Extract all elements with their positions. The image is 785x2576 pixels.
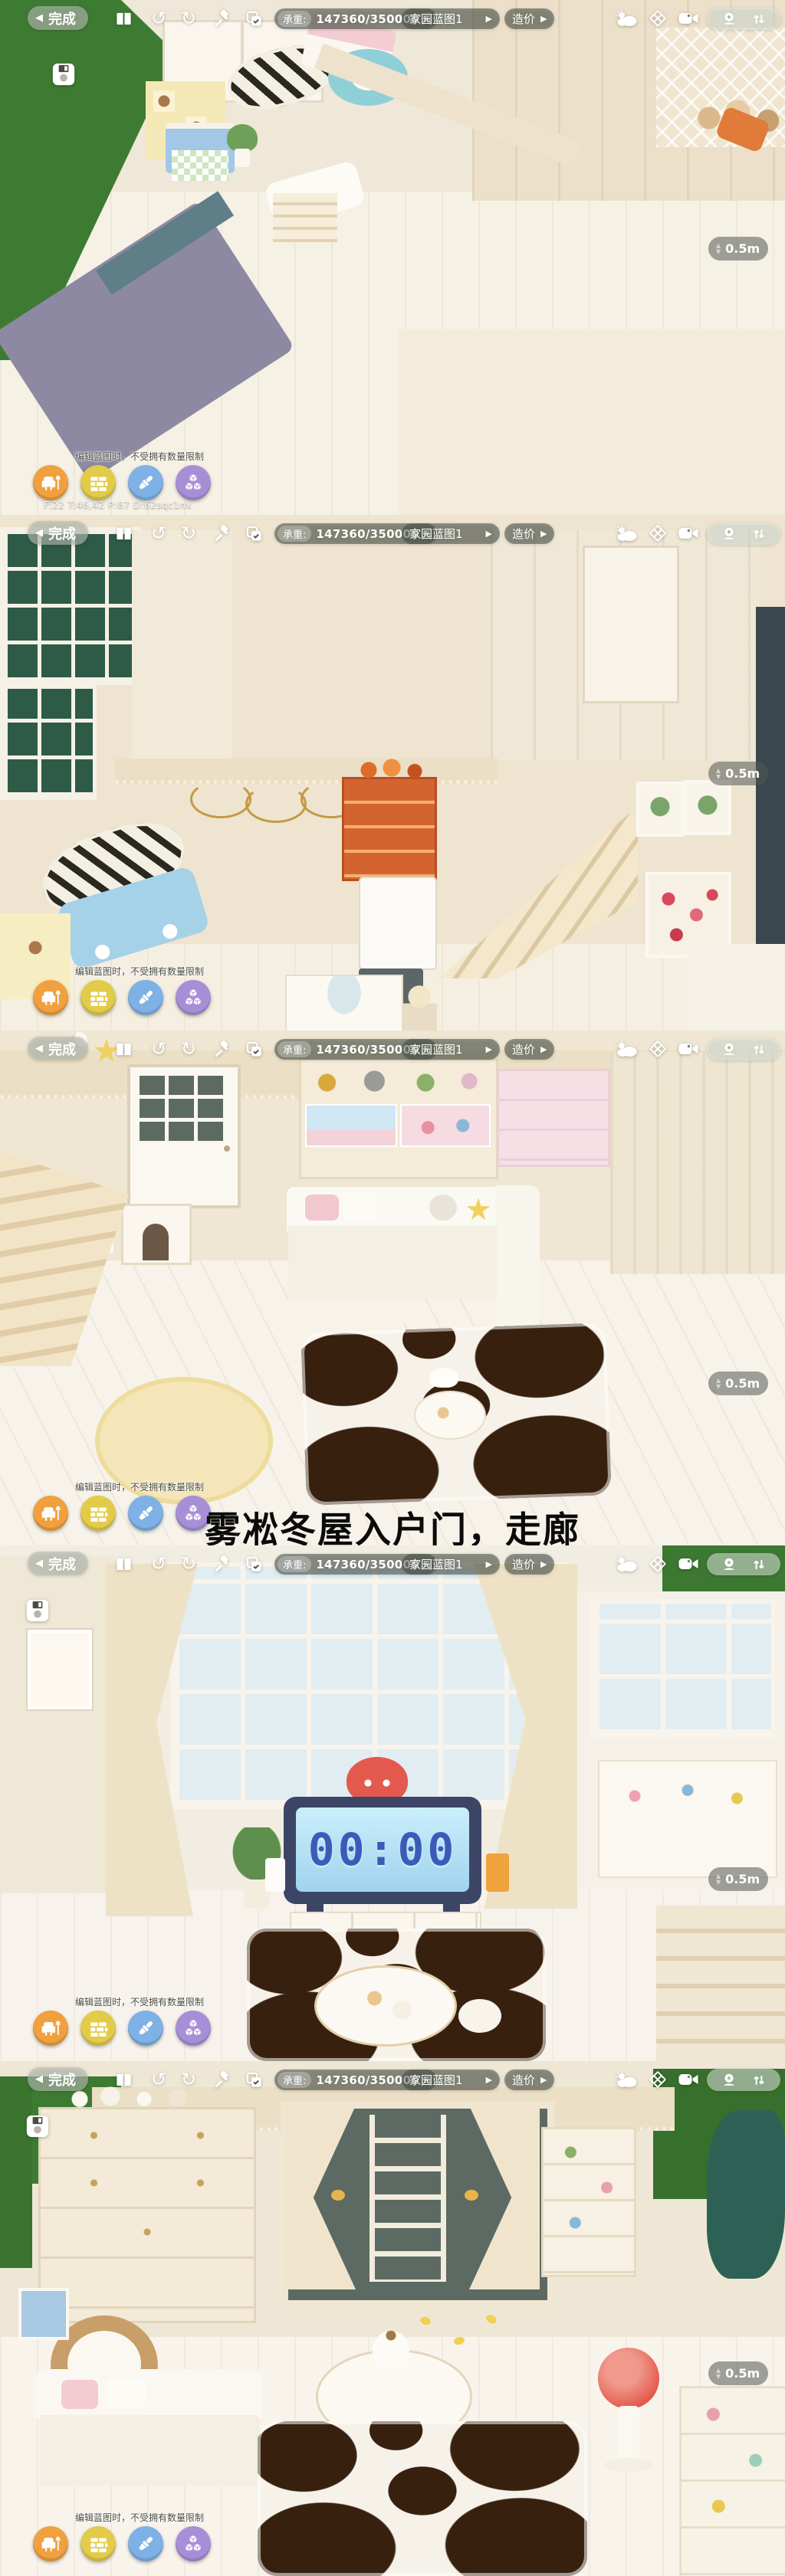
video-camera-icon[interactable] — [676, 8, 701, 29]
cost-button[interactable]: 造价 ▶ — [504, 1554, 554, 1575]
weather-icon[interactable] — [613, 2069, 641, 2090]
back-chevron-icon: ◀ — [35, 1043, 43, 1054]
floor-grid-icon[interactable] — [647, 1553, 668, 1575]
save-icon[interactable] — [51, 61, 77, 87]
redo-icon[interactable]: ↻ — [178, 8, 199, 29]
grid-size-steppers: ▲▼ — [716, 1873, 721, 1886]
cost-button[interactable]: 造价 ▶ — [504, 2070, 554, 2090]
cost-button[interactable]: 造价 ▶ — [504, 523, 554, 544]
weather-icon[interactable] — [613, 8, 641, 29]
grid-size-value: 0.5m — [725, 2366, 760, 2381]
floor-grid-icon[interactable] — [647, 2069, 668, 2090]
observer-camera-icon[interactable] — [721, 11, 737, 28]
top-bar: ◀ 完成 ↺ ↻ 承重: 147360/350000 ▶ 家园蓝图1 ▶ 造价 … — [0, 1031, 785, 1067]
grid-size-value: 0.5m — [725, 766, 760, 781]
blocks-mode-button[interactable] — [176, 2011, 211, 2046]
observer-camera-icon[interactable] — [721, 1041, 737, 1058]
grid-size-down-icon[interactable]: ▼ — [716, 2374, 721, 2380]
caption-text: 雾凇冬屋入户门，走廊 — [0, 1500, 785, 1545]
save-icon[interactable] — [25, 2113, 51, 2139]
cubes-icon — [182, 987, 204, 1008]
undo-icon[interactable]: ↺ — [148, 523, 169, 544]
finish-button[interactable]: ◀ 完成 — [28, 1552, 88, 1575]
weight-label: 承重: — [278, 1041, 311, 1057]
grid-size-stepper[interactable]: ▲▼ 0.5m — [708, 2361, 768, 2385]
video-camera-icon[interactable] — [676, 2069, 701, 2090]
blocks-mode-button[interactable] — [176, 980, 211, 1015]
grid-size-stepper[interactable]: ▲▼ 0.5m — [708, 237, 768, 261]
finish-label: 完成 — [48, 523, 76, 543]
blueprint-label: 家园蓝图1 — [409, 2072, 463, 2088]
grid-size-value: 0.5m — [725, 1376, 760, 1391]
sort-arrows-icon[interactable] — [751, 2073, 767, 2088]
weather-icon[interactable] — [613, 1553, 641, 1575]
wall-mode-button[interactable] — [80, 465, 116, 500]
cost-label: 造价 — [512, 526, 535, 542]
weight-label: 承重: — [278, 1556, 311, 1572]
camera-view-pill[interactable] — [707, 2069, 780, 2091]
redo-icon[interactable]: ↻ — [178, 1038, 199, 1060]
cost-arrow-icon[interactable]: ▶ — [540, 2075, 547, 2085]
bricks-icon — [88, 988, 109, 1008]
grid-size-down-icon[interactable]: ▼ — [716, 1384, 721, 1390]
blueprint-label: 家园蓝图1 — [409, 11, 463, 27]
sort-arrows-icon[interactable] — [751, 1042, 767, 1057]
floor-grid-icon[interactable] — [647, 523, 668, 544]
paint-mode-button[interactable] — [128, 465, 163, 500]
grid-size-value: 0.5m — [725, 1872, 760, 1886]
hammer-icon[interactable] — [212, 1553, 233, 1575]
top-bar: ◀ 完成 ↺ ↻ 承重: 147360/350000 ▶ 家园蓝图1 ▶ 造价 … — [0, 0, 785, 37]
paint-mode-button[interactable] — [128, 2011, 163, 2046]
grid-size-steppers: ▲▼ — [716, 2368, 721, 2380]
top-bar: ◀ 完成 ↺ ↻ 承重: 147360/350000 ▶ 家园蓝图1 ▶ 造价 … — [0, 515, 785, 552]
copy-check-icon[interactable] — [243, 1038, 264, 1060]
redo-icon[interactable]: ↻ — [178, 2069, 199, 2090]
paint-mode-button[interactable] — [128, 980, 163, 1015]
blueprint-book-icon[interactable] — [113, 1038, 134, 1060]
undo-icon[interactable]: ↺ — [148, 1553, 169, 1575]
cost-button[interactable]: 造价 ▶ — [504, 1039, 554, 1060]
blueprint-book-icon[interactable] — [113, 8, 134, 29]
blueprint-label: 家园蓝图1 — [409, 1041, 463, 1057]
floor-grid-icon[interactable] — [647, 8, 668, 29]
back-chevron-icon: ◀ — [35, 2073, 43, 2085]
weight-label: 承重: — [278, 11, 311, 27]
finish-label: 完成 — [48, 8, 76, 28]
weather-icon[interactable] — [613, 523, 641, 544]
camera-view-pill[interactable] — [707, 1038, 780, 1060]
hammer-icon[interactable] — [212, 523, 233, 544]
screenshot-panel-3: 雾凇冬屋入户门，走廊 ◀ 完成 ↺ ↻ 承重: 147360/350000 ▶ … — [0, 1031, 785, 1545]
back-chevron-icon: ◀ — [35, 1558, 43, 1569]
armchair-lamp-icon — [40, 2533, 61, 2555]
grid-size-down-icon[interactable]: ▼ — [716, 249, 721, 255]
camera-view-pill[interactable] — [707, 523, 780, 545]
redo-icon[interactable]: ↻ — [178, 523, 199, 544]
bricks-icon — [88, 2018, 109, 2039]
cost-label: 造价 — [512, 2072, 535, 2088]
camera-view-pill[interactable] — [707, 1553, 780, 1575]
copy-check-icon[interactable] — [243, 1553, 264, 1575]
back-chevron-icon: ◀ — [35, 527, 43, 539]
blueprint-hint-text: 编辑蓝图时，不受拥有数量限制 — [75, 2511, 204, 2524]
furniture-mode-button[interactable] — [33, 465, 68, 500]
redo-icon[interactable]: ↻ — [178, 1553, 199, 1575]
cubes-icon — [182, 472, 204, 493]
armchair-lamp-icon — [40, 2017, 61, 2039]
blueprint-book-icon[interactable] — [113, 2069, 134, 2090]
furniture-mode-button[interactable] — [33, 2526, 68, 2561]
blueprint-arrow-icon[interactable]: ▶ — [486, 1044, 492, 1054]
undo-icon[interactable]: ↺ — [148, 1038, 169, 1060]
screenshot-panel-4: 00:00 ◀ 完成 ↺ ↻ — [0, 1545, 785, 2061]
blueprint-hint-text: 编辑蓝图时，不受拥有数量限制 — [75, 1480, 204, 1493]
weather-icon[interactable] — [613, 1038, 641, 1060]
screenshot-panel-1: F:22 T:46,42 P:87 D:62sqc1nx ◀ 完成 ↺ ↻ 承重… — [0, 0, 785, 515]
cost-label: 造价 — [512, 11, 535, 27]
armchair-lamp-icon — [40, 472, 61, 493]
grid-size-stepper[interactable]: ▲▼ 0.5m — [708, 1867, 768, 1891]
paint-brush-icon — [135, 2533, 156, 2555]
armchair-lamp-icon — [40, 987, 61, 1008]
blueprint-selector[interactable]: 家园蓝图1 ▶ — [402, 523, 500, 544]
hammer-icon[interactable] — [212, 2069, 233, 2090]
blueprint-book-icon[interactable] — [113, 523, 134, 544]
paint-mode-button[interactable] — [128, 2526, 163, 2561]
undo-icon[interactable]: ↺ — [148, 2069, 169, 2090]
grid-size-stepper[interactable]: ▲▼ 0.5m — [708, 1372, 768, 1395]
video-camera-icon[interactable] — [676, 1553, 701, 1575]
grid-size-stepper[interactable]: ▲▼ 0.5m — [708, 762, 768, 785]
blueprint-label: 家园蓝图1 — [409, 526, 463, 542]
copy-check-icon[interactable] — [243, 8, 264, 29]
camera-view-pill[interactable] — [707, 8, 780, 30]
copy-check-icon[interactable] — [243, 2069, 264, 2090]
finish-label: 完成 — [48, 1554, 76, 1574]
cost-arrow-icon[interactable]: ▶ — [540, 529, 547, 539]
finish-label: 完成 — [48, 1039, 76, 1059]
blueprint-hint-text: 编辑蓝图时，不受拥有数量限制 — [75, 1995, 204, 2008]
finish-button[interactable]: ◀ 完成 — [28, 6, 88, 30]
finish-button[interactable]: ◀ 完成 — [28, 1037, 88, 1060]
cost-arrow-icon[interactable]: ▶ — [540, 1559, 547, 1569]
video-camera-icon[interactable] — [676, 1038, 701, 1060]
screenshot-strip: F:22 T:46,42 P:87 D:62sqc1nx ◀ 完成 ↺ ↻ 承重… — [0, 0, 785, 2576]
observer-camera-icon[interactable] — [721, 1556, 737, 1573]
sort-arrows-icon[interactable] — [751, 1557, 767, 1572]
cost-arrow-icon[interactable]: ▶ — [540, 1044, 547, 1054]
grid-size-down-icon[interactable]: ▼ — [716, 774, 721, 780]
top-bar: ◀ 完成 ↺ ↻ 承重: 147360/350000 ▶ 家园蓝图1 ▶ 造价 … — [0, 2061, 785, 2098]
finish-label: 完成 — [48, 2070, 76, 2089]
weight-label: 承重: — [278, 2072, 311, 2088]
paint-brush-icon — [135, 2017, 156, 2039]
cost-label: 造价 — [512, 1556, 535, 1572]
blueprint-arrow-icon[interactable]: ▶ — [486, 14, 492, 24]
copy-check-icon[interactable] — [243, 523, 264, 544]
bricks-icon — [88, 473, 109, 493]
paint-brush-icon — [135, 987, 156, 1008]
debug-overlay-text: F:22 T:46,42 P:87 D:62sqc1nx — [44, 500, 192, 510]
blocks-mode-button[interactable] — [176, 465, 211, 500]
observer-camera-icon[interactable] — [721, 2072, 737, 2089]
hammer-icon[interactable] — [212, 1038, 233, 1060]
cost-button[interactable]: 造价 ▶ — [504, 8, 554, 29]
floor-grid-icon[interactable] — [647, 1038, 668, 1060]
blueprint-hint-text: 编辑蓝图时，不受拥有数量限制 — [75, 965, 204, 978]
blueprint-selector[interactable]: 家园蓝图1 ▶ — [402, 8, 500, 29]
sort-arrows-icon[interactable] — [751, 526, 767, 542]
video-camera-icon[interactable] — [676, 523, 701, 544]
cost-arrow-icon[interactable]: ▶ — [540, 14, 547, 24]
bricks-icon — [88, 2534, 109, 2555]
finish-button[interactable]: ◀ 完成 — [28, 2067, 88, 2091]
cubes-icon — [182, 2533, 204, 2555]
top-bar: ◀ 完成 ↺ ↻ 承重: 147360/350000 ▶ 家园蓝图1 ▶ 造价 … — [0, 1545, 785, 1582]
grid-size-steppers: ▲▼ — [716, 768, 721, 780]
blueprint-arrow-icon[interactable]: ▶ — [486, 2075, 492, 2085]
grid-size-down-icon[interactable]: ▼ — [716, 1880, 721, 1886]
grid-size-steppers: ▲▼ — [716, 243, 721, 255]
cubes-icon — [182, 2017, 204, 2039]
weight-label: 承重: — [278, 526, 311, 542]
back-chevron-icon: ◀ — [35, 12, 43, 24]
furniture-mode-button[interactable] — [33, 980, 68, 1015]
furniture-mode-button[interactable] — [33, 2011, 68, 2046]
blueprint-label: 家园蓝图1 — [409, 1556, 463, 1572]
blueprint-book-icon[interactable] — [113, 1553, 134, 1575]
screenshot-panel-2: ◀ 完成 ↺ ↻ 承重: 147360/350000 ▶ 家园蓝图1 ▶ 造价 … — [0, 515, 785, 1031]
grid-size-value: 0.5m — [725, 241, 760, 256]
save-icon[interactable] — [25, 1598, 51, 1624]
sort-arrows-icon[interactable] — [751, 11, 767, 27]
screenshot-panel-5: ◀ 完成 ↺ ↻ 承重: 147360/350000 ▶ 家园蓝图1 ▶ 造价 … — [0, 2061, 785, 2576]
blueprint-selector[interactable]: 家园蓝图1 ▶ — [402, 1554, 500, 1575]
wall-mode-button[interactable] — [80, 2011, 116, 2046]
blueprint-selector[interactable]: 家园蓝图1 ▶ — [402, 1039, 500, 1060]
blueprint-arrow-icon[interactable]: ▶ — [486, 529, 492, 539]
wall-mode-button[interactable] — [80, 2526, 116, 2561]
observer-camera-icon[interactable] — [721, 526, 737, 542]
paint-brush-icon — [135, 472, 156, 493]
blueprint-hint-text: 编辑蓝图时，不受拥有数量限制 — [75, 450, 204, 463]
cost-label: 造价 — [512, 1041, 535, 1057]
wall-mode-button[interactable] — [80, 980, 116, 1015]
hammer-icon[interactable] — [212, 8, 233, 29]
blueprint-arrow-icon[interactable]: ▶ — [486, 1559, 492, 1569]
grid-size-steppers: ▲▼ — [716, 1378, 721, 1390]
undo-icon[interactable]: ↺ — [148, 8, 169, 29]
blocks-mode-button[interactable] — [176, 2526, 211, 2561]
blueprint-selector[interactable]: 家园蓝图1 ▶ — [402, 2070, 500, 2090]
finish-button[interactable]: ◀ 完成 — [28, 521, 88, 545]
